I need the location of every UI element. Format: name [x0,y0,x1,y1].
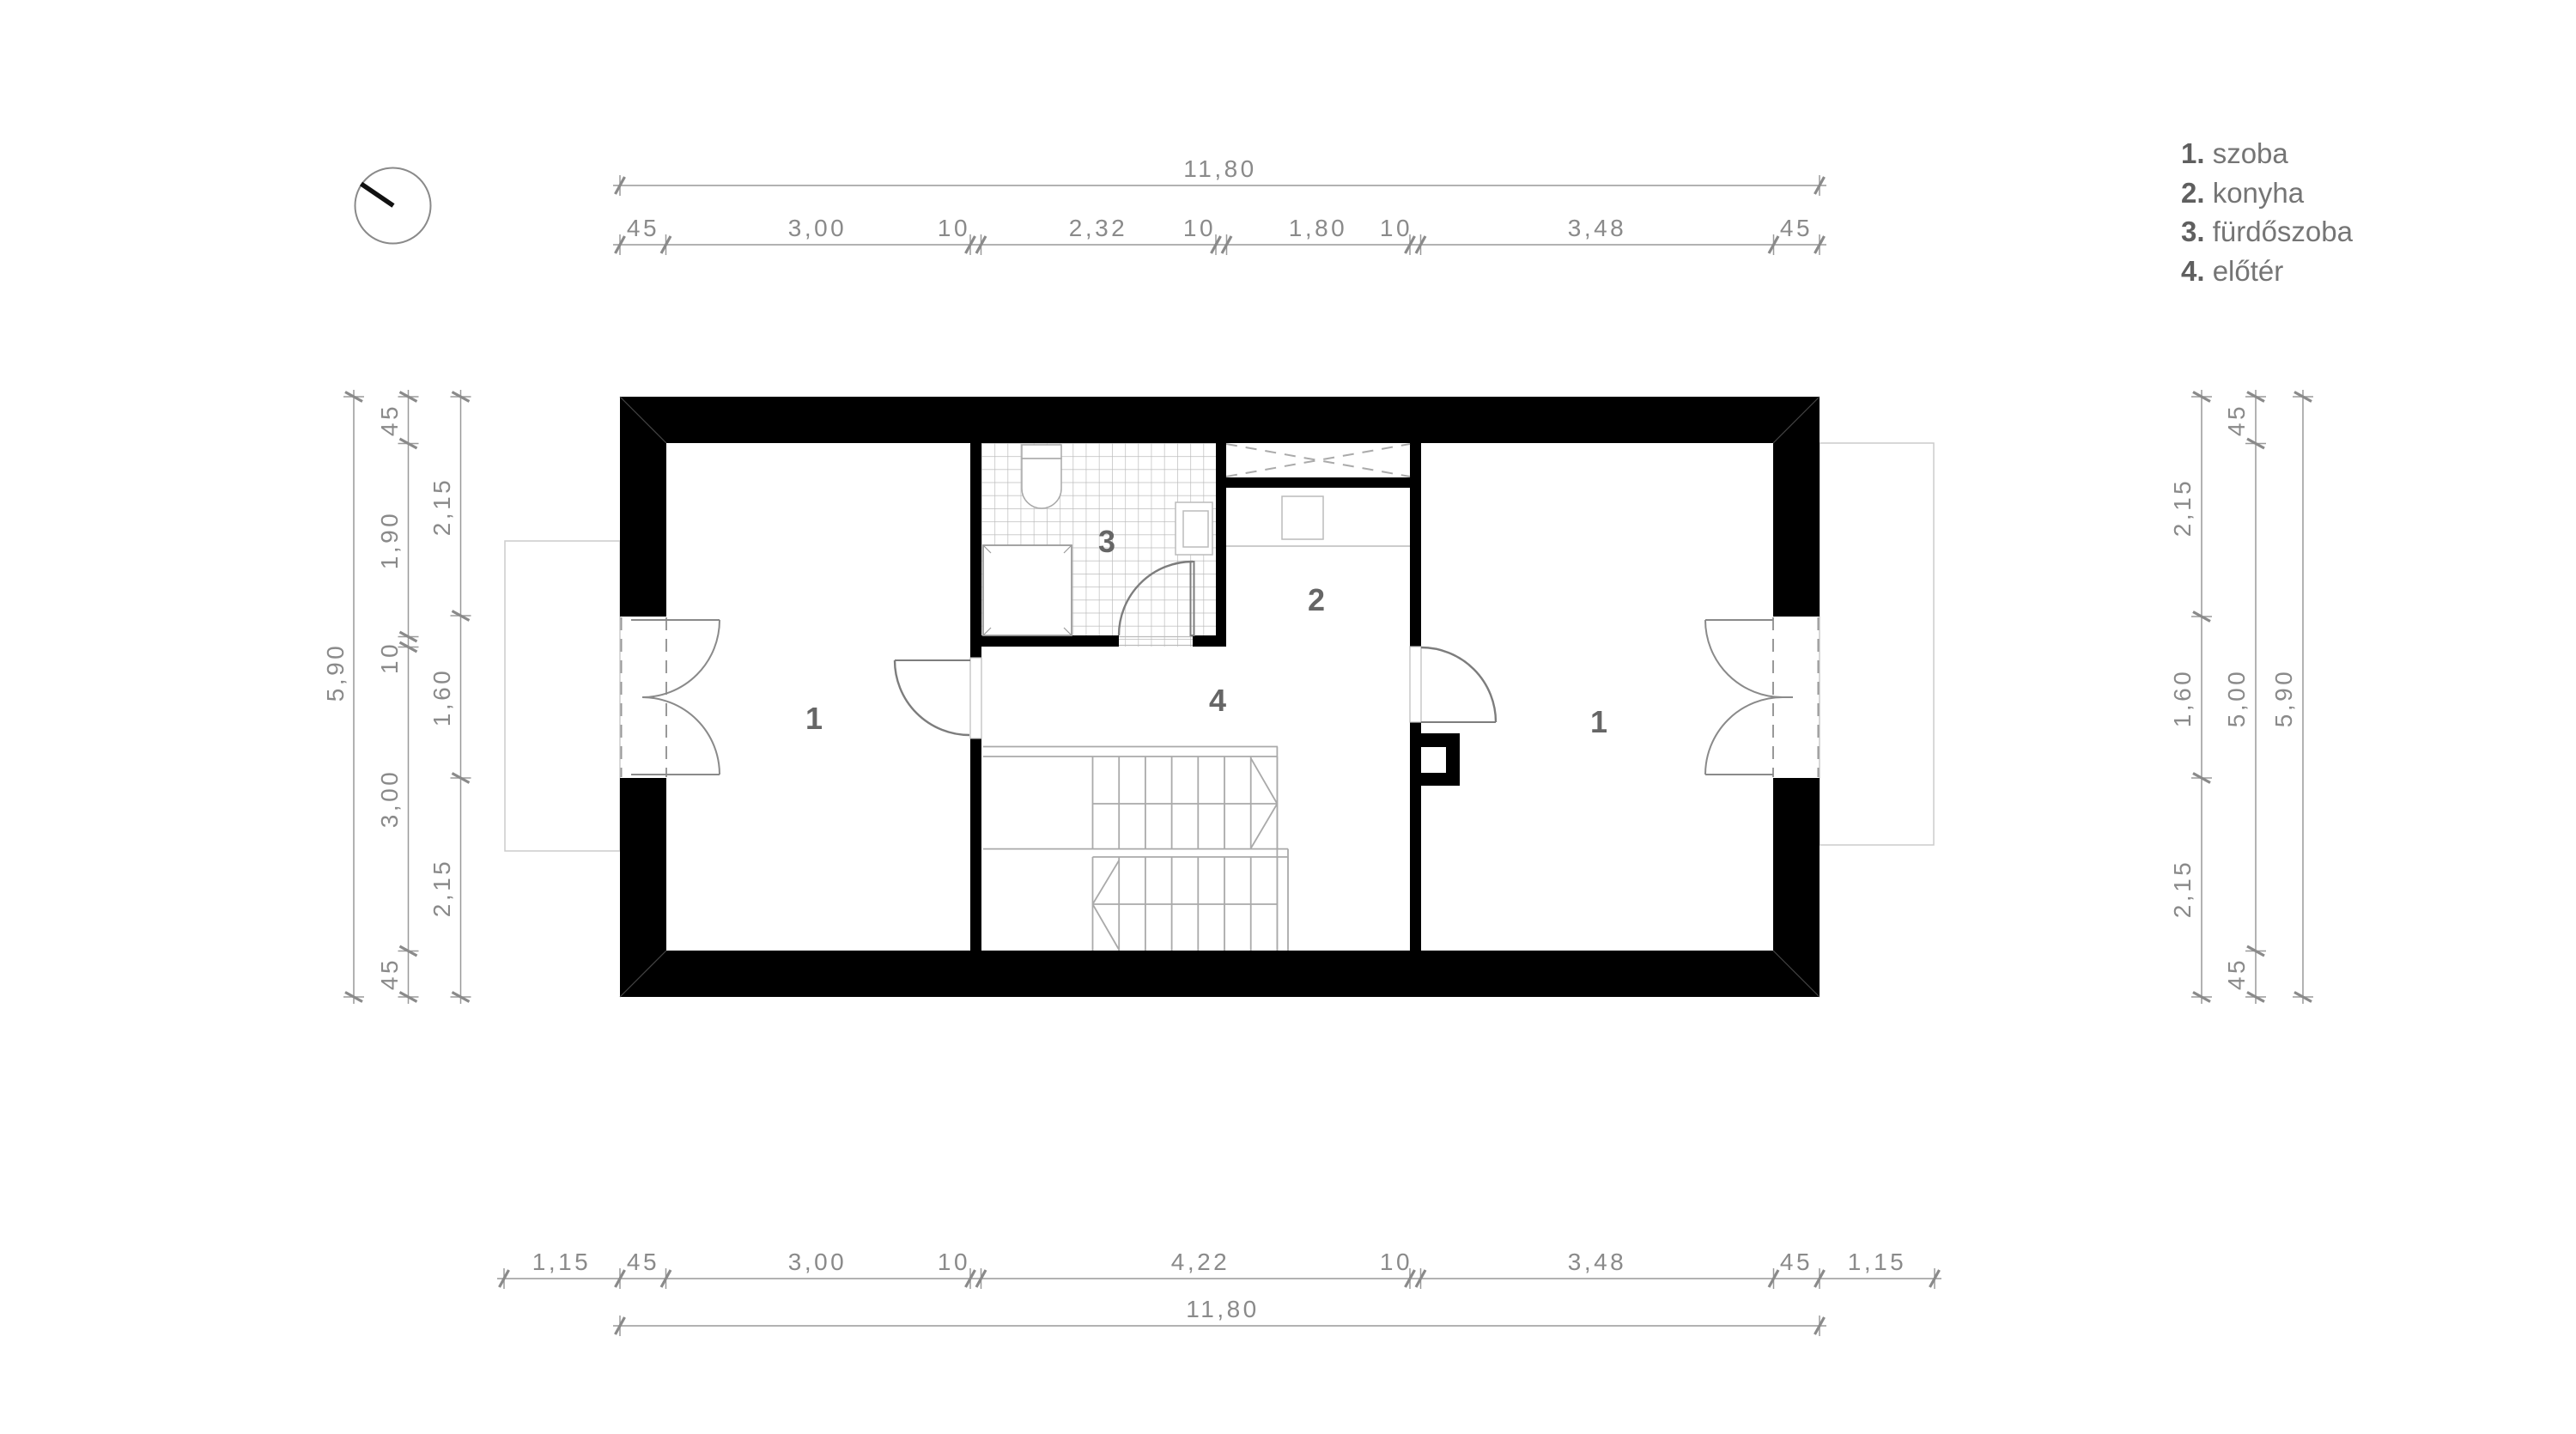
svg-text:45: 45 [376,957,403,990]
svg-text:1,60: 1,60 [2169,669,2196,728]
svg-text:10: 10 [1183,215,1216,241]
svg-text:1,60: 1,60 [428,668,455,727]
svg-text:2,32: 2,32 [1069,215,1128,241]
svg-text:45: 45 [2223,404,2250,436]
svg-text:10: 10 [376,641,403,674]
svg-text:5,90: 5,90 [322,643,349,702]
svg-text:2,15: 2,15 [2169,478,2196,538]
svg-text:3,00: 3,00 [788,215,848,241]
svg-text:1. szoba: 1. szoba [2181,137,2288,169]
svg-text:1: 1 [1590,704,1607,739]
svg-text:2. konyha: 2. konyha [2181,177,2305,209]
svg-text:3,48: 3,48 [1568,1249,1627,1275]
svg-text:4. előtér: 4. előtér [2181,255,2283,287]
svg-text:1,15: 1,15 [1848,1249,1907,1275]
svg-text:5,90: 5,90 [2270,669,2297,728]
svg-text:3,00: 3,00 [788,1249,848,1275]
svg-text:4,22: 4,22 [1171,1249,1230,1275]
svg-text:45: 45 [2223,957,2250,990]
svg-text:3: 3 [1098,524,1115,559]
svg-text:11,80: 11,80 [1183,155,1257,182]
svg-text:10: 10 [938,1249,970,1275]
svg-text:45: 45 [627,215,659,241]
svg-text:45: 45 [1780,215,1813,241]
svg-text:45: 45 [376,404,403,436]
svg-text:4: 4 [1209,683,1226,718]
svg-text:11,80: 11,80 [1186,1296,1260,1322]
svg-text:2,15: 2,15 [428,859,455,918]
svg-text:10: 10 [1380,1249,1413,1275]
svg-text:5,00: 5,00 [2223,669,2250,728]
svg-text:1,90: 1,90 [376,511,403,570]
svg-text:3,48: 3,48 [1568,215,1627,241]
svg-text:2,15: 2,15 [428,477,455,537]
svg-text:1,80: 1,80 [1289,215,1348,241]
svg-text:1: 1 [805,701,823,736]
svg-text:3,00: 3,00 [376,769,403,829]
svg-text:3. fürdőszoba: 3. fürdőszoba [2181,216,2354,247]
svg-text:2: 2 [1308,582,1325,617]
svg-text:45: 45 [627,1249,659,1275]
svg-text:1,15: 1,15 [532,1249,592,1275]
svg-text:10: 10 [938,215,970,241]
svg-text:45: 45 [1780,1249,1813,1275]
svg-text:10: 10 [1380,215,1413,241]
svg-text:2,15: 2,15 [2169,860,2196,919]
